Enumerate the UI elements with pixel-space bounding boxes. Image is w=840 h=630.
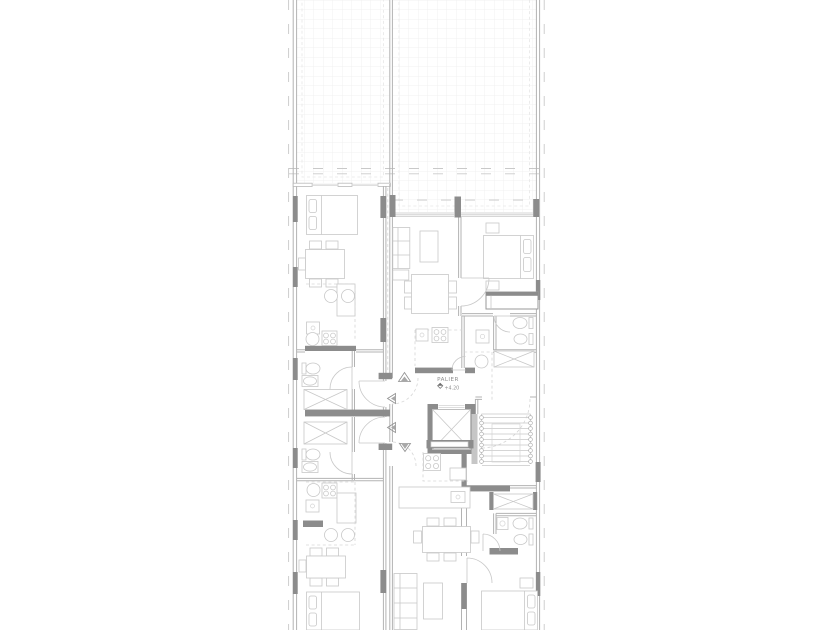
staircase [472,399,533,466]
tile-paving-grid [297,0,390,183]
spine-wall-left-apartment [383,186,387,630]
washbasin [416,329,428,341]
pillow [309,613,317,626]
kitchen-sink [306,333,319,346]
nightstand [520,578,533,588]
bar-stool [342,290,355,303]
spine-wall-center-apartment [390,184,393,630]
wardrobe-crossed [304,422,347,444]
washbasin [304,377,317,385]
dining-table-symbol [299,241,345,287]
sliding-door [312,184,338,185]
door-swing-arc [481,399,530,448]
pillow [524,240,532,254]
pillow [309,596,317,609]
bedroom-upper-right [461,223,538,309]
dining-table-symbol [299,548,346,586]
door-swing-arc [359,381,385,407]
cooktop-four-burner [322,483,337,498]
dining-table-symbol [414,518,480,561]
coffee-table [424,583,443,619]
bathroom-upper-left [302,363,352,410]
stair-wall-strip [472,414,478,464]
apartment-upper-left [299,196,358,410]
pillow [309,200,317,213]
door-swing-arc [461,278,489,306]
sofa-symbol [393,228,410,281]
kitchen-sink [307,484,320,497]
kitchen-mid-right [452,352,492,400]
washbasin [306,500,319,512]
bar-stool [342,529,355,542]
kitchen-upper-left [306,284,355,346]
structural-column [293,196,298,222]
kitchen-mid-center [415,328,462,367]
pillow [528,612,536,625]
sliding-door [352,184,378,185]
washbasin [304,463,317,471]
double-bed-symbol [307,196,358,235]
cooktop-four-burner [432,328,448,343]
door-swing-arc [330,367,352,389]
toilet [513,518,533,529]
pillow [309,217,317,230]
floor-plan-canvas: PALIER +4.20 [0,0,840,630]
apartment-upper-center [393,228,462,367]
bar-stool [325,529,338,542]
ottoman [393,270,409,280]
floor-plan-drawing: PALIER +4.20 [0,0,840,630]
stair-treads-with-balusters [482,414,531,464]
kitchen-sink [475,355,488,368]
toilet [513,318,533,329]
door-swing-arc [452,357,466,371]
level-marker [438,383,443,388]
terrace-left [297,0,390,183]
landing-label: PALIER [437,377,459,383]
closet [486,292,538,309]
facade-wall-upper-left [293,183,390,186]
kitchen-lower-left [306,482,356,545]
bathroom-lower-left [302,422,352,474]
washbasin [497,518,508,530]
section-marker-triangle [388,373,411,452]
toilet [302,449,306,460]
bathroom-lower-right [483,492,537,551]
double-bed-symbol [482,591,538,630]
washbasin [476,330,489,343]
wardrobe-crossed [304,390,347,410]
door-swing-arc [359,417,385,443]
wardrobe-crossed [489,492,537,510]
dining-table-symbol [405,275,457,314]
double-bed-symbol [484,236,534,279]
landing-level: +4.20 [445,386,460,392]
coffee-table [420,231,438,262]
terrace-right [393,0,537,212]
cooktop-four-burner [322,331,337,346]
pillow [528,595,536,608]
nightstand [486,223,499,233]
bidet [514,534,533,545]
kitchen-sink [451,492,465,503]
bedroom-lower-right [467,558,538,630]
toilet [302,363,306,374]
wardrobe-crossed [494,351,534,367]
bidet [514,334,533,345]
sofa-symbol [394,574,417,630]
double-bed-symbol [307,592,360,630]
tile-paving-grid [393,0,537,212]
facade-wall-upper-right [393,213,533,217]
bar-stool [325,290,338,303]
kitchen-island [399,487,470,508]
door-swing-arc [330,452,352,474]
door-swing-arc [467,558,492,583]
pillow [524,258,532,272]
cooktop-four-burner [424,454,441,471]
